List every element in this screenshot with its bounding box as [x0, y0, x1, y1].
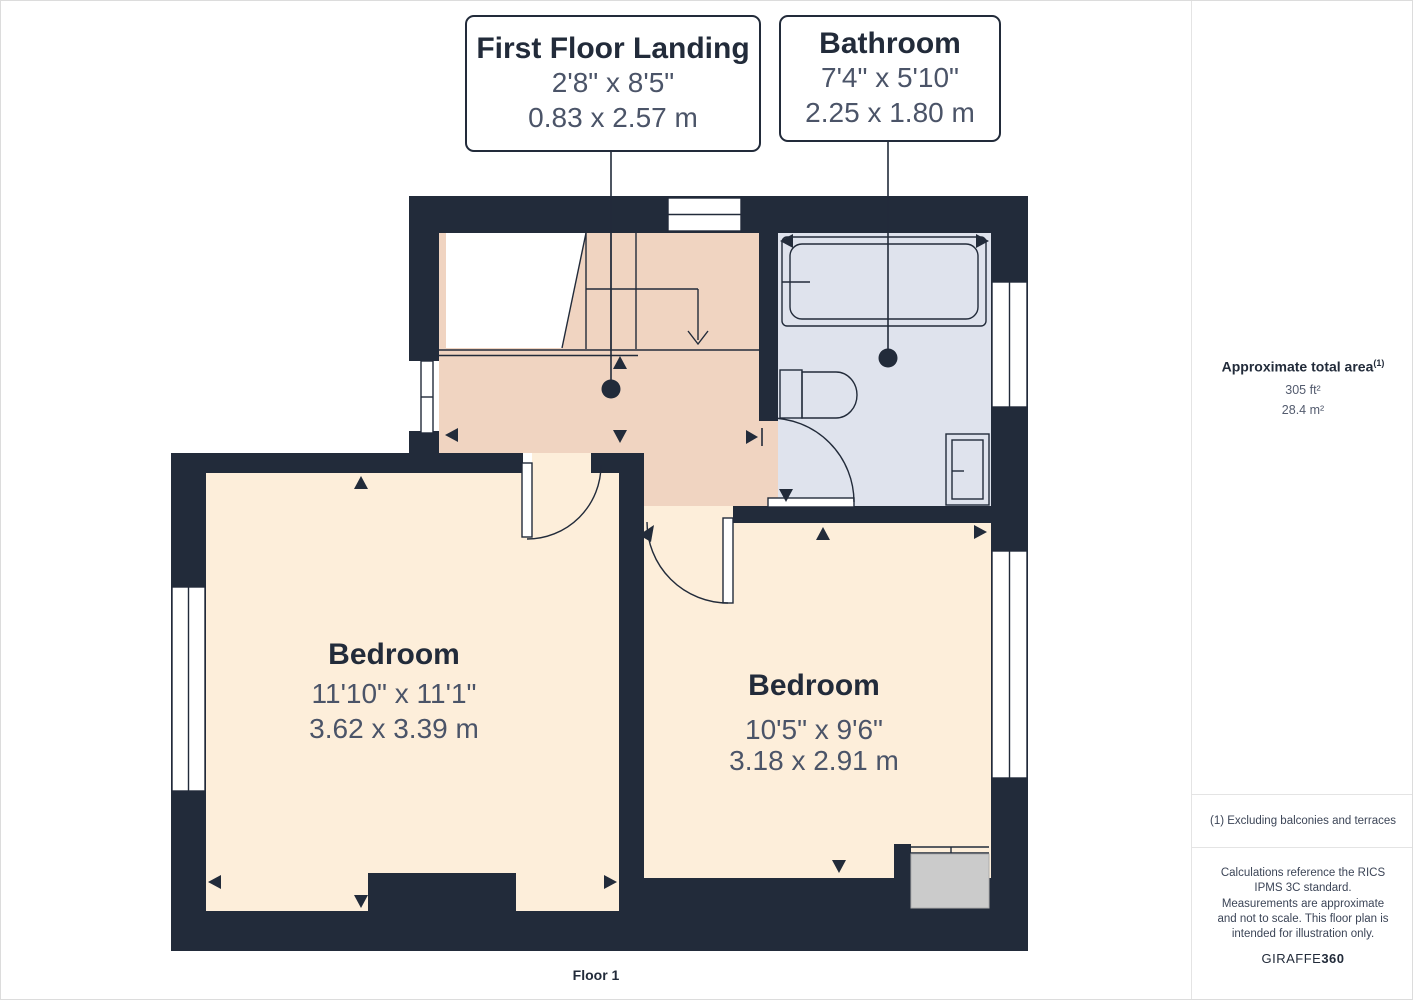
callout-imperial: 2'8" x 8'5" — [552, 66, 674, 100]
bedroom-2-imperial: 10'5" x 9'6" — [745, 714, 883, 745]
total-area-title-text: Approximate total area — [1222, 359, 1374, 375]
callout-title: Bathroom — [819, 27, 961, 62]
total-area-footnote-marker: (1) — [1373, 358, 1384, 368]
window-landing-left — [421, 361, 433, 433]
callout-metric: 2.25 x 1.80 m — [805, 96, 975, 130]
camera-point-landing — [602, 380, 621, 399]
info-sidebar: Approximate total area(1) 305 ft² 28.4 m… — [1191, 1, 1413, 1000]
bedroom-1-name: Bedroom — [328, 638, 460, 671]
closet — [911, 847, 989, 908]
window-top-wall — [668, 198, 741, 231]
floors — [206, 233, 991, 911]
giraffe360-logo: GIRAFFE360 — [1192, 951, 1413, 966]
callout-metric: 0.83 x 2.57 m — [528, 101, 698, 135]
callout-bathroom: Bathroom 7'4" x 5'10" 2.25 x 1.80 m — [779, 15, 1001, 142]
bathroom-floor — [778, 233, 991, 506]
brand-prefix: GIRAFFE — [1261, 951, 1321, 966]
floor-label: Floor 1 — [1, 967, 1191, 983]
camera-point-bathroom — [879, 349, 898, 368]
window-bathroom-right — [992, 282, 1027, 407]
total-area-title: Approximate total area(1) — [1192, 358, 1413, 375]
total-area-block: Approximate total area(1) 305 ft² 28.4 m… — [1192, 358, 1413, 423]
disclaimer-text: Calculations reference the RICS IPMS 3C … — [1192, 866, 1413, 942]
bedroom-2-metric: 3.18 x 2.91 m — [729, 745, 899, 776]
callout-imperial: 7'4" x 5'10" — [821, 61, 959, 95]
bedroom-1-imperial: 11'10" x 11'1" — [312, 678, 477, 709]
area-footnote: (1) Excluding balconies and terraces — [1192, 794, 1413, 848]
bedroom-1-door-gap — [532, 453, 591, 475]
window-bedroom-1-left — [172, 587, 205, 791]
floor-plan: Bedroom 11'10" x 11'1" 3.62 x 3.39 m Bed… — [1, 1, 1191, 1000]
floorplan-page: Bedroom 11'10" x 11'1" 3.62 x 3.39 m Bed… — [0, 0, 1413, 1000]
total-area-ft: 305 ft² — [1192, 383, 1413, 397]
callout-first-floor-landing: First Floor Landing 2'8" x 8'5" 0.83 x 2… — [465, 15, 761, 152]
bedroom-1-metric: 3.62 x 3.39 m — [309, 713, 479, 744]
total-area-m: 28.4 m² — [1192, 403, 1413, 417]
brand-suffix: 360 — [1321, 951, 1344, 966]
bedroom-2-name: Bedroom — [748, 669, 880, 702]
window-bedroom-2-right — [992, 551, 1027, 778]
callout-title: First Floor Landing — [476, 32, 749, 67]
